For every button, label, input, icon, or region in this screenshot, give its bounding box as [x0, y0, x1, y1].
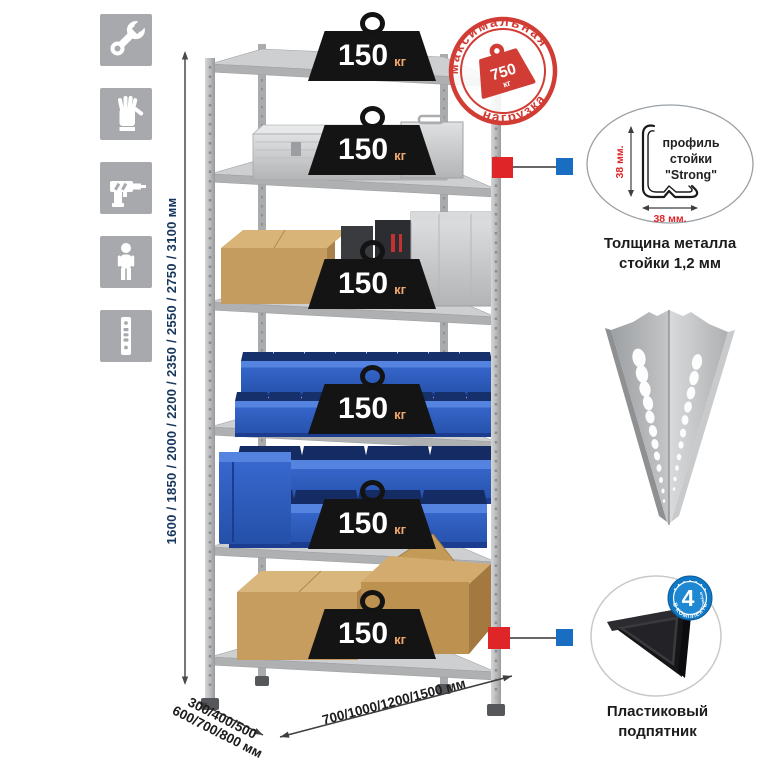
weight-value: 150	[338, 269, 388, 299]
shelf-weight-badge: 150кг	[308, 240, 436, 309]
weight-value: 150	[338, 394, 388, 424]
shelf-weight-badge: 150кг	[308, 590, 436, 659]
profile-dim-vertical: 38 мм.	[614, 145, 626, 178]
shelf-weight-badge: 150кг	[308, 365, 436, 434]
marker-red-profile	[492, 157, 513, 178]
weight-ring	[360, 480, 385, 503]
drill-icon	[100, 162, 152, 214]
gloves-icon-glyph	[100, 88, 152, 140]
weight-value: 150	[338, 509, 388, 539]
height-dimension-label: 1600 / 1850 / 2000 / 2200 / 2350 / 2550 …	[164, 41, 186, 701]
weight-ring	[360, 12, 385, 35]
profile-caption-line1: Толщина металла	[584, 234, 756, 254]
weight-value: 150	[338, 135, 388, 165]
weight-unit: кг	[394, 55, 406, 68]
weight-unit: кг	[394, 408, 406, 421]
weight-value: 150	[338, 41, 388, 71]
foot-caption: Пластиковый подпятник	[585, 702, 730, 741]
weight-ring	[360, 106, 385, 129]
weight-ring	[360, 240, 385, 263]
profile-caption: Толщина металла стойки 1,2 мм	[584, 234, 756, 273]
infographic-canvas: 1600 / 1850 / 2000 / 2200 / 2350 / 2550 …	[0, 0, 765, 765]
callout-line-foot	[510, 637, 558, 639]
foot-caption-line1: Пластиковый	[585, 702, 730, 722]
weight-value: 150	[338, 619, 388, 649]
weight-unit: кг	[394, 633, 406, 646]
badge-value: 4	[682, 585, 695, 611]
callout-line-profile	[512, 166, 558, 168]
weight-unit: кг	[394, 523, 406, 536]
foot-caption-line2: подпятник	[585, 722, 730, 742]
max-load-stamp: максимальная нагрузка 750 кг	[438, 6, 568, 136]
weight-ring	[360, 590, 385, 613]
profile-dim-horizontal: 38 мм.	[653, 213, 686, 225]
weight-unit: кг	[394, 283, 406, 296]
marker-blue-profile	[556, 158, 573, 175]
wrench-icon-glyph	[100, 14, 152, 66]
drill-icon-glyph	[100, 162, 152, 214]
quantity-badge: 4 штуки в комплекте	[666, 574, 714, 622]
post-profile-icon	[100, 310, 152, 362]
profile-label-3: "Strong"	[665, 168, 717, 182]
corner-post-image	[597, 300, 742, 535]
width-dimension-label: 700/1000/1200/1500 мм	[321, 676, 468, 728]
profile-label-1: профиль	[662, 136, 719, 150]
profile-caption-line2: стойки 1,2 мм	[584, 254, 756, 274]
marker-blue-foot	[556, 629, 573, 646]
shelf-weight-badge: 150кг	[308, 12, 436, 81]
person-icon-glyph	[100, 236, 152, 288]
weight-unit: кг	[394, 149, 406, 162]
post-profile-detail: профиль стойки "Strong" 38 мм. 38 мм.	[584, 100, 756, 230]
depth-dimension-label: 300/400/500 600/700/800 мм	[170, 690, 271, 761]
wrench-icon	[100, 14, 152, 66]
shelf-weight-badge: 150кг	[308, 480, 436, 549]
person-icon	[100, 236, 152, 288]
marker-red-foot	[488, 627, 510, 649]
bottom-dimensions: 300/400/500 600/700/800 мм 700/1000/1200…	[160, 655, 590, 765]
gloves-icon	[100, 88, 152, 140]
weight-ring	[360, 365, 385, 388]
shelf-weight-badge: 150кг	[308, 106, 436, 175]
post-profile-icon-glyph	[100, 310, 152, 362]
profile-label-2: стойки	[670, 152, 712, 166]
